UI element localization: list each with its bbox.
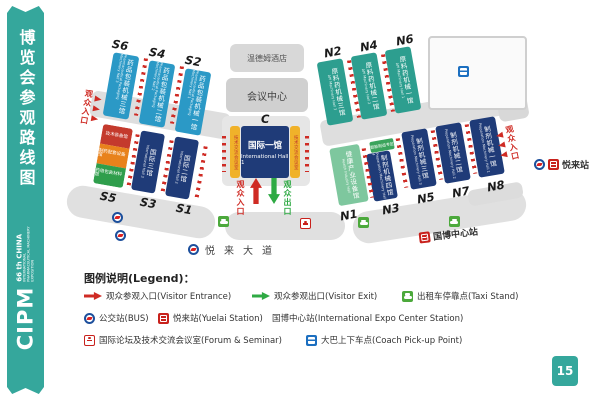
legend-taxi-label: 出租车停靠点(Taxi Stand) — [417, 290, 518, 302]
entrance-left: 观众入口 — [79, 89, 103, 128]
hall-n6-code: N6 — [395, 32, 415, 49]
hall-c-strip-right-text: 技术交流会议室 — [293, 135, 298, 170]
legend-forum-label: 国际论坛及技术交流会议室(Forum & Seminar) — [99, 334, 282, 346]
visitor-exit-label: 观众出口 — [283, 180, 291, 216]
yuelai-station: 悦来站 — [534, 158, 589, 171]
entrance-arrow-icon — [94, 96, 102, 103]
hall-c-en: International Hall 1 — [241, 154, 289, 166]
hall-s2-code: S2 — [184, 53, 202, 70]
hall-s5-code: S5 — [99, 189, 117, 206]
road-label-row: 悦来大道 — [188, 242, 281, 257]
legend-exit-label: 观众参观出口(Visitor Exit) — [274, 290, 377, 302]
entrance-arrow-icon — [495, 132, 503, 139]
metro-station-icon — [548, 159, 559, 170]
legend-entrance-label: 观众参观入口(Visitor Entrance) — [106, 290, 231, 302]
legend-title: 图例说明(Legend)： — [84, 270, 195, 286]
legend-forum: 国际论坛及技术交流会议室(Forum & Seminar) — [84, 334, 282, 346]
bus-stop-icon — [534, 159, 545, 170]
route-arrows — [305, 136, 309, 172]
taxi-stand-icon — [449, 216, 460, 227]
cipm-logo: CIPM 66 th CHINA INTERNATIONAL PHARMACEU… — [15, 210, 36, 360]
visitor-entrance-label: 观众入口 — [236, 180, 244, 216]
taxi-stand-icon — [218, 216, 229, 227]
hall-c-code: C — [261, 112, 269, 126]
hall-s1-code: S1 — [175, 201, 193, 218]
metro-station-icon — [419, 231, 431, 243]
hall-c-strip-left-text: 技术交流会议室 — [233, 135, 238, 170]
metro-station-icon — [158, 313, 169, 324]
hall-c-name: 国际一馆 — [248, 139, 282, 151]
hall-s3-code: S3 — [139, 195, 157, 212]
hall-c-strip-left: 技术交流会议室 — [230, 126, 240, 178]
entrance-arrow-icon — [84, 292, 102, 300]
legend-exit: 观众参观出口(Visitor Exit) — [252, 290, 377, 302]
legend-yuelai-label: 悦来站(Yuelai Station) — [173, 312, 263, 324]
entrance-arrow-icon — [500, 151, 508, 158]
hall-n4-code: N4 — [359, 38, 379, 55]
parking-lot — [428, 36, 527, 110]
legend-coach: 大巴上下车点(Coach Pick-up Point) — [306, 334, 462, 346]
hall-s5-seg3: 药用包装材料馆 — [93, 163, 126, 188]
entrance-arrow-icon — [498, 141, 506, 148]
exit-arrow-icon — [252, 292, 270, 300]
exhibition-route-map-page: 博览会参观路线图 CIPM 66 th CHINA INTERNATIONAL … — [0, 0, 600, 400]
hotel-building: 温德姆酒店 — [230, 44, 304, 72]
hall-c-strip-right: 技术交流会议室 — [290, 126, 300, 178]
route-arrows — [222, 136, 226, 172]
cipm-logo-text: CIPM — [15, 287, 36, 351]
taxi-stand-icon — [358, 217, 369, 228]
page-title: 博览会参观路线图 — [14, 29, 38, 189]
side-ribbon: 博览会参观路线图 CIPM 66 th CHINA INTERNATIONAL … — [7, 3, 44, 397]
entrance-arrow-icon — [92, 105, 100, 112]
expo-subtitle: INTERNATIONAL PHARMACEUTICAL MACHINERY E… — [23, 220, 35, 282]
hall-n3-banner-text: 智能制造专区 — [370, 140, 395, 150]
road-label: 悦来大道 — [205, 242, 281, 257]
hall-c: 国际一馆 International Hall 1 — [241, 126, 289, 178]
legend-taxi: 出租车停靠点(Taxi Stand) — [402, 290, 518, 302]
hall-s4-code: S4 — [148, 45, 166, 62]
conference-label: 会议中心 — [247, 88, 287, 103]
forum-seminar-icon — [300, 218, 311, 229]
yuelai-station-label: 悦来站 — [562, 158, 589, 171]
legend-expo-station: 国博中心站(International Expo Center Station) — [272, 312, 463, 324]
legend-entrance: 观众参观入口(Visitor Entrance) — [84, 290, 231, 302]
conference-center-building: 会议中心 — [226, 78, 308, 112]
bus-stop-icon — [84, 313, 95, 324]
forum-seminar-icon — [84, 335, 95, 346]
road-shape-center — [225, 212, 345, 240]
legend-coach-label: 大巴上下车点(Coach Pick-up Point) — [321, 334, 462, 346]
taxi-stand-icon — [402, 291, 413, 302]
legend-yuelai-station: 悦来站(Yuelai Station) — [158, 312, 263, 324]
hall-s6-code: S6 — [111, 37, 129, 54]
entrance-arrow-icon — [91, 115, 99, 122]
page-number: 15 — [552, 356, 578, 386]
hotel-label: 温德姆酒店 — [247, 53, 287, 64]
legend-expo-label: 国博中心站(International Expo Center Station) — [272, 312, 463, 324]
bus-stop-icon — [188, 244, 199, 255]
coach-pickup-icon — [458, 66, 469, 77]
legend-bus: 公交站(BUS) — [84, 312, 149, 324]
coach-pickup-icon — [306, 335, 317, 346]
bus-stop-icon — [115, 230, 126, 241]
legend-bus-label: 公交站(BUS) — [99, 312, 149, 324]
